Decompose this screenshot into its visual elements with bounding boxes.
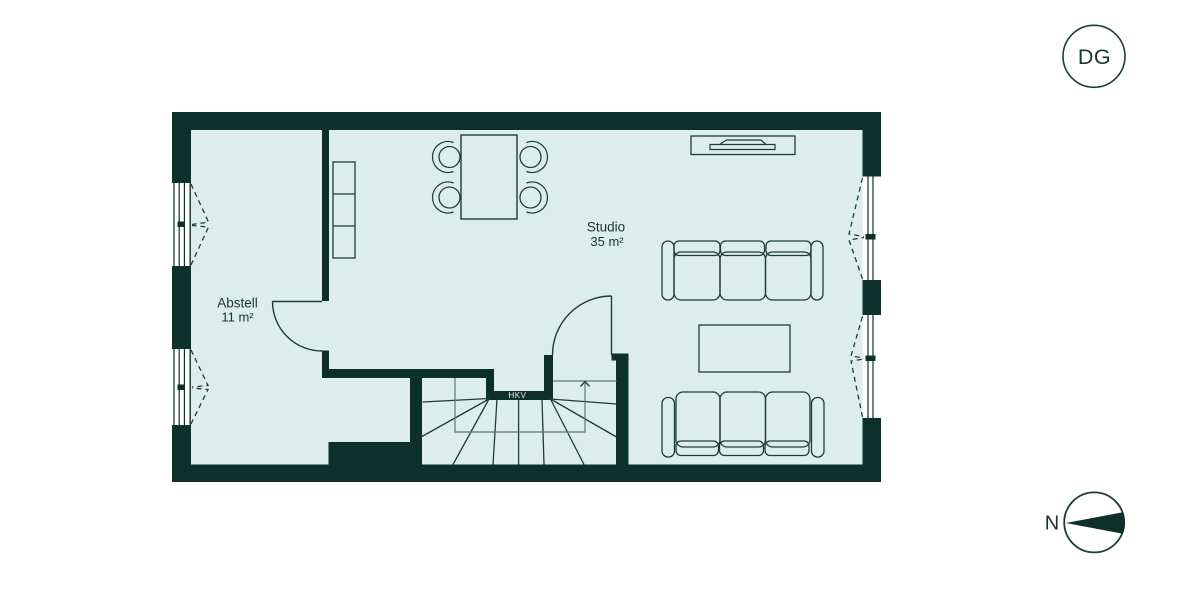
svg-text:Studio: Studio: [587, 220, 625, 235]
svg-text:Abstell: Abstell: [217, 296, 258, 311]
svg-text:11 m²: 11 m²: [221, 310, 254, 325]
svg-text:N: N: [1045, 513, 1059, 535]
svg-text:HKV: HKV: [509, 391, 527, 400]
svg-text:DG: DG: [1078, 45, 1111, 69]
svg-text:35 m²: 35 m²: [590, 234, 624, 249]
